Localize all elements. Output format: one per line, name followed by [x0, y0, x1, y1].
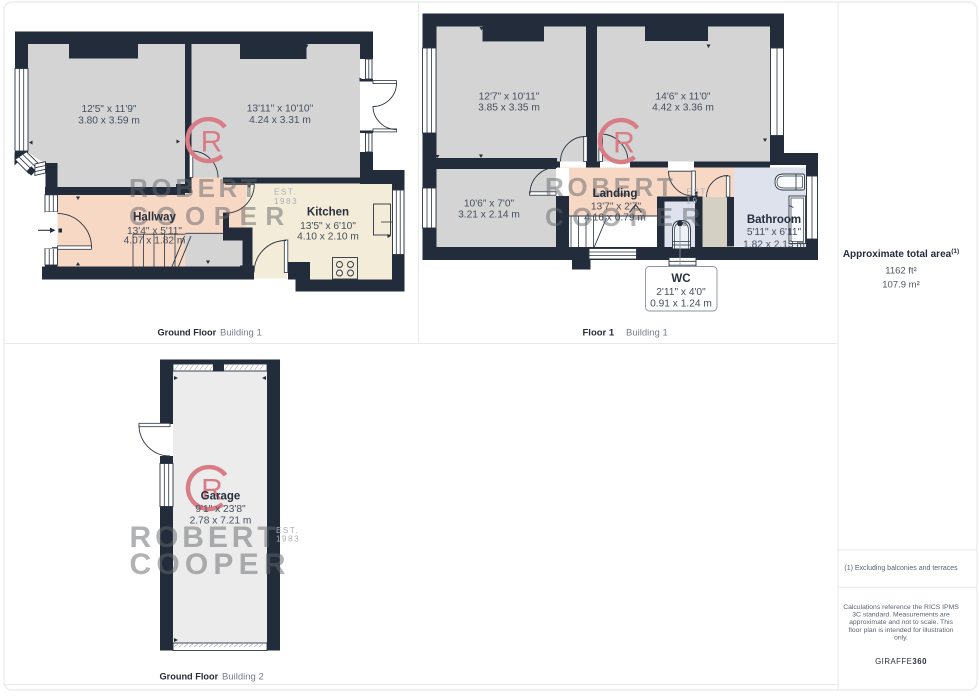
- svg-text:Garage: Garage: [201, 491, 241, 503]
- svg-text:Ground Floor: Ground Floor: [160, 672, 219, 682]
- svg-text:Building 2: Building 2: [222, 672, 264, 683]
- svg-text:13'7" x 2'7": 13'7" x 2'7": [591, 202, 642, 213]
- svg-text:13'5" x 6'10": 13'5" x 6'10": [300, 221, 356, 232]
- svg-text:3.80 x 3.59 m: 3.80 x 3.59 m: [78, 116, 140, 127]
- svg-text:3.21 x 2.14 m: 3.21 x 2.14 m: [458, 210, 520, 221]
- svg-text:2.78 x 7.21 m: 2.78 x 7.21 m: [190, 516, 252, 527]
- svg-text:1983: 1983: [276, 535, 300, 544]
- svg-text:Building 1: Building 1: [626, 328, 668, 339]
- svg-text:5'11" x 6'11": 5'11" x 6'11": [747, 227, 802, 238]
- svg-text:Approximate total area(1): Approximate total area(1): [843, 248, 959, 260]
- svg-text:Hallway: Hallway: [133, 212, 176, 224]
- svg-text:R: R: [613, 127, 635, 160]
- svg-text:(1) Excluding balconies and te: (1) Excluding balconies and terraces: [844, 565, 958, 572]
- svg-text:9'1" x 23'8": 9'1" x 23'8": [195, 504, 246, 515]
- svg-text:Bathroom: Bathroom: [747, 214, 801, 226]
- svg-text:4.07 x 1.82 m: 4.07 x 1.82 m: [124, 235, 186, 246]
- svg-text:19: 19: [687, 197, 699, 206]
- svg-text:3C standard. Measurements are: 3C standard. Measurements are: [852, 612, 950, 619]
- svg-text:12'5" x 11'9": 12'5" x 11'9": [81, 104, 136, 115]
- svg-text:Calculations reference the RIC: Calculations reference the RICS IPMS: [843, 604, 959, 611]
- svg-text:4.16 x 0.79 m: 4.16 x 0.79 m: [584, 213, 646, 224]
- svg-text:2'11" x 4'0": 2'11" x 4'0": [656, 287, 706, 298]
- svg-text:4.10 x 2.10 m: 4.10 x 2.10 m: [297, 232, 359, 243]
- svg-text:Building 1: Building 1: [220, 328, 262, 339]
- svg-text:Floor 1: Floor 1: [583, 328, 615, 339]
- svg-text:Landing: Landing: [593, 188, 638, 200]
- svg-text:0.91 x 1.24 m: 0.91 x 1.24 m: [650, 299, 712, 310]
- svg-text:EST.: EST.: [687, 188, 710, 197]
- svg-text:14'6" x 11'0": 14'6" x 11'0": [655, 92, 710, 103]
- svg-text:COOPER: COOPER: [130, 548, 291, 581]
- svg-text:1983: 1983: [274, 197, 298, 206]
- svg-text:R: R: [201, 126, 223, 159]
- svg-text:4.42 x 3.36 m: 4.42 x 3.36 m: [652, 103, 714, 114]
- svg-text:Kitchen: Kitchen: [307, 207, 349, 219]
- svg-text:12'7" x 10'11": 12'7" x 10'11": [479, 92, 540, 103]
- svg-text:4.24 x 3.31 m: 4.24 x 3.31 m: [249, 115, 311, 126]
- svg-text:3.85 x 3.35 m: 3.85 x 3.35 m: [478, 103, 540, 114]
- svg-text:floor plan is intended for ill: floor plan is intended for illustration: [848, 627, 953, 634]
- svg-text:approximate and not to scale.: approximate and not to scale. This: [849, 619, 953, 626]
- svg-text:EST.: EST.: [274, 188, 297, 197]
- svg-text:Ground Floor: Ground Floor: [158, 328, 217, 338]
- svg-text:WC: WC: [671, 273, 690, 285]
- svg-text:1162 ft²: 1162 ft²: [885, 266, 917, 277]
- svg-text:1.82 x 2.13 m: 1.82 x 2.13 m: [743, 240, 805, 251]
- svg-text:ROBERT: ROBERT: [129, 173, 260, 203]
- svg-text:107.9 m²: 107.9 m²: [882, 280, 920, 291]
- svg-text:13'11" x 10'10": 13'11" x 10'10": [247, 104, 314, 115]
- svg-text:10'6" x 7'0": 10'6" x 7'0": [464, 199, 515, 210]
- svg-text:GIRAFFE360: GIRAFFE360: [875, 657, 927, 666]
- svg-text:only.: only.: [894, 634, 908, 641]
